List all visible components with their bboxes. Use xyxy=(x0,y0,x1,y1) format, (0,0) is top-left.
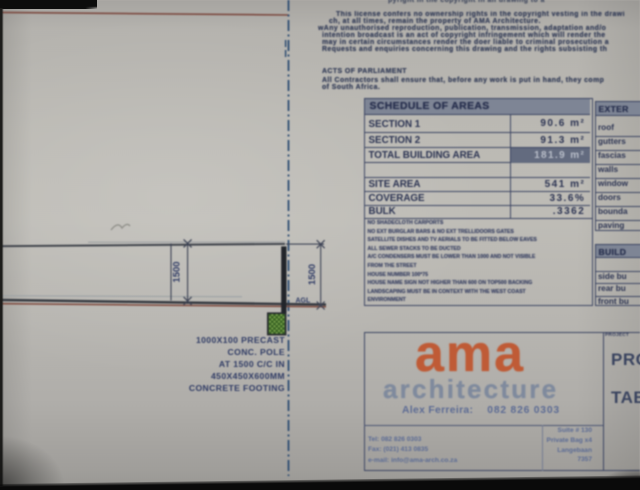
svg-text:1500: 1500 xyxy=(307,264,318,285)
svg-text:1500: 1500 xyxy=(171,261,182,282)
svg-text:AGL: AGL xyxy=(296,298,312,305)
